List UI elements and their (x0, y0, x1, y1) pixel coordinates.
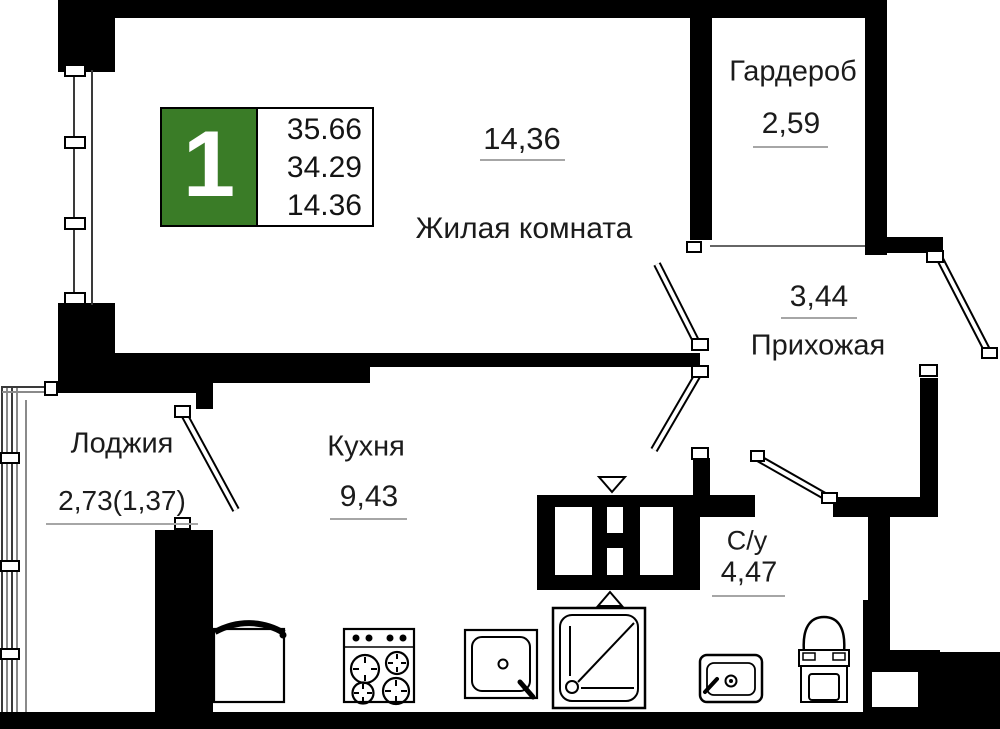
room-label-wardrobe: Гардероб (729, 56, 857, 89)
door-leaf-living-room (657, 264, 700, 349)
area-underline-living (480, 159, 565, 161)
area-underline-loggia (46, 523, 198, 525)
room-area-bathroom: 4,47 (721, 557, 777, 590)
room-label-living: Жилая комната (416, 212, 633, 246)
room-area-kitchen: 9,43 (340, 480, 398, 514)
fixtures-overlay (0, 0, 1000, 729)
area-underline-wardrobe (753, 146, 828, 148)
vent-triangle-down-icon (599, 477, 625, 492)
rooms-count-badge: 1 (162, 109, 258, 225)
floor-plan: 14,36 Жилая комната Гардероб 2,59 3,44 П… (0, 0, 1000, 729)
area-underline-hallway (781, 317, 857, 319)
area-total: 35.66 (258, 111, 362, 149)
area-living-total: 34.29 (258, 149, 362, 187)
room-label-kitchen: Кухня (327, 431, 405, 464)
room-area-hallway: 3,44 (790, 280, 848, 314)
room-label-bathroom: С/у (727, 526, 768, 557)
rooms-count: 1 (183, 117, 235, 211)
apartment-badge: 1 35.66 34.29 14.36 (160, 107, 374, 227)
door-frame-caps (175, 242, 997, 529)
kitchen-sink-icon (465, 630, 537, 698)
stove-icon (344, 629, 414, 704)
toilet-icon (799, 617, 849, 702)
room-area-loggia: 2,73(1,37) (58, 485, 186, 517)
shower-icon (553, 608, 645, 708)
door-leaf-kitchen (654, 371, 700, 450)
door-leaf-loggia (185, 416, 236, 510)
room-area-living: 14,36 (483, 121, 561, 157)
area-underline-kitchen (330, 518, 407, 520)
door-leaf-entry (940, 259, 988, 352)
bathroom-sink-icon (700, 655, 762, 702)
area-room-main: 14.36 (258, 187, 362, 225)
room-label-hallway: Прихожая (751, 330, 885, 363)
area-summary: 35.66 34.29 14.36 (258, 109, 372, 225)
room-area-wardrobe: 2,59 (762, 107, 820, 141)
vent-triangle-up-icon (598, 592, 622, 606)
fridge-icon (214, 623, 287, 702)
area-underline-bathroom (712, 595, 785, 597)
door-leaf-bathroom (758, 458, 830, 499)
room-label-loggia: Лоджия (71, 428, 174, 461)
